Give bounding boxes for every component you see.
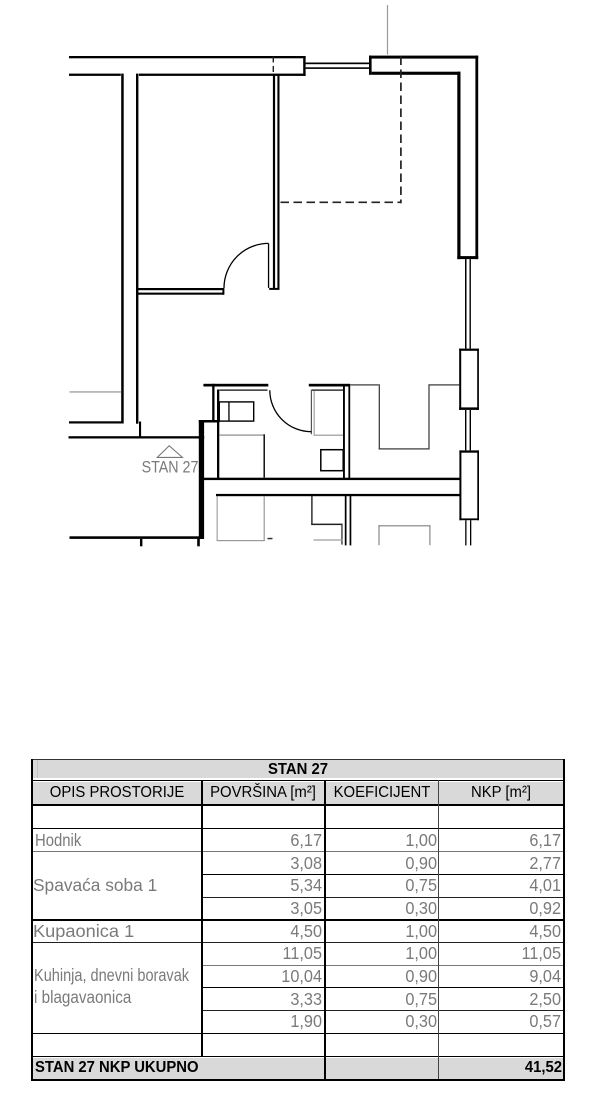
- svg-text:STAN 27: STAN 27: [142, 459, 199, 477]
